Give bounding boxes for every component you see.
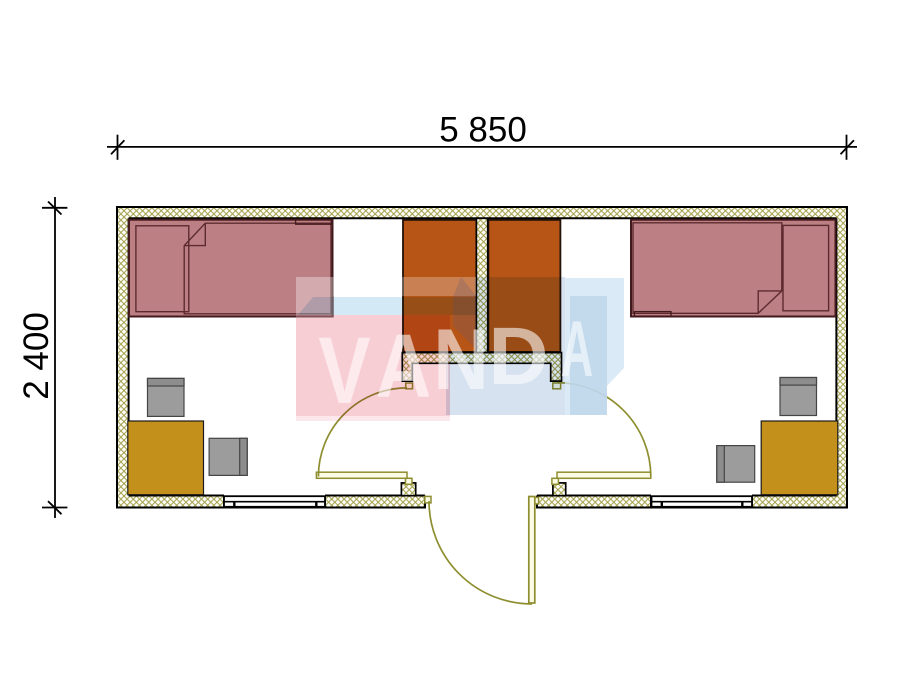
svg-text:A: A: [376, 315, 432, 416]
svg-text:N: N: [433, 312, 488, 408]
svg-text:D: D: [488, 310, 548, 402]
svg-text:2 400: 2 400: [17, 312, 56, 400]
svg-text:V: V: [318, 318, 370, 424]
svg-text:5 850: 5 850: [439, 111, 527, 150]
svg-text:A: A: [561, 305, 594, 393]
